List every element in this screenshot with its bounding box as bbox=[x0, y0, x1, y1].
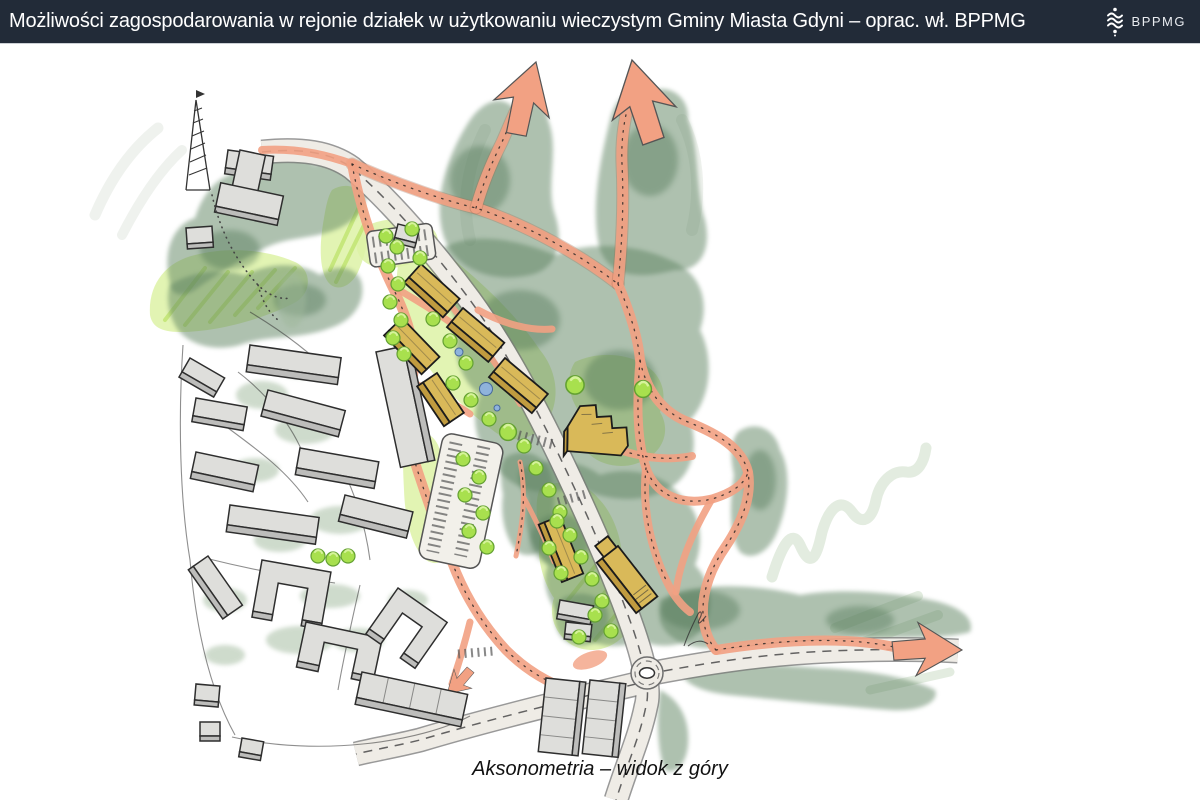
site-plan-illustration bbox=[0, 0, 1200, 800]
wave-stack-icon bbox=[1105, 7, 1125, 37]
slide: Możliwości zagospodarowania w rejonie dz… bbox=[0, 0, 1200, 800]
title-bar: Możliwości zagospodarowania w rejonie dz… bbox=[0, 0, 1200, 44]
caption: Aksonometria – widok z góry bbox=[0, 758, 1200, 781]
roundabout bbox=[631, 657, 663, 689]
logo-label: BPPMG bbox=[1132, 14, 1186, 29]
bppmg-logo: BPPMG bbox=[1105, 7, 1200, 37]
page-title: Możliwości zagospodarowania w rejonie dz… bbox=[0, 10, 1026, 33]
lattice-tower-icon bbox=[186, 90, 210, 190]
